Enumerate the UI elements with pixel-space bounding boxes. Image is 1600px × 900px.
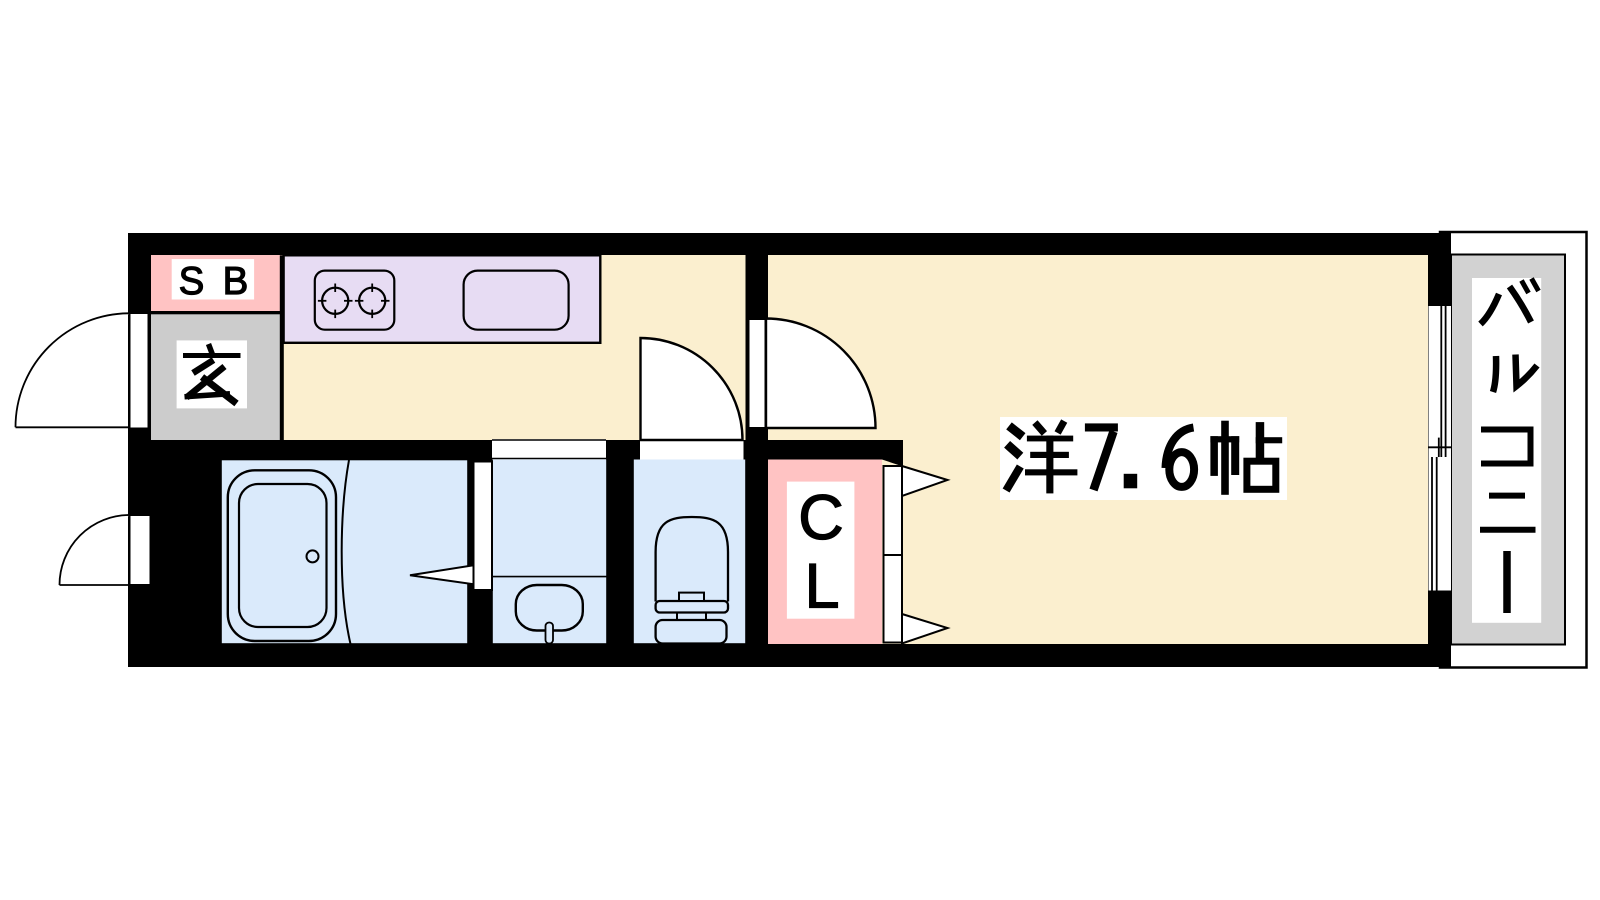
svg-text:B: B (223, 260, 249, 303)
svg-text:L: L (804, 552, 839, 622)
svg-text:C: C (798, 483, 844, 553)
svg-text:S: S (179, 260, 205, 303)
